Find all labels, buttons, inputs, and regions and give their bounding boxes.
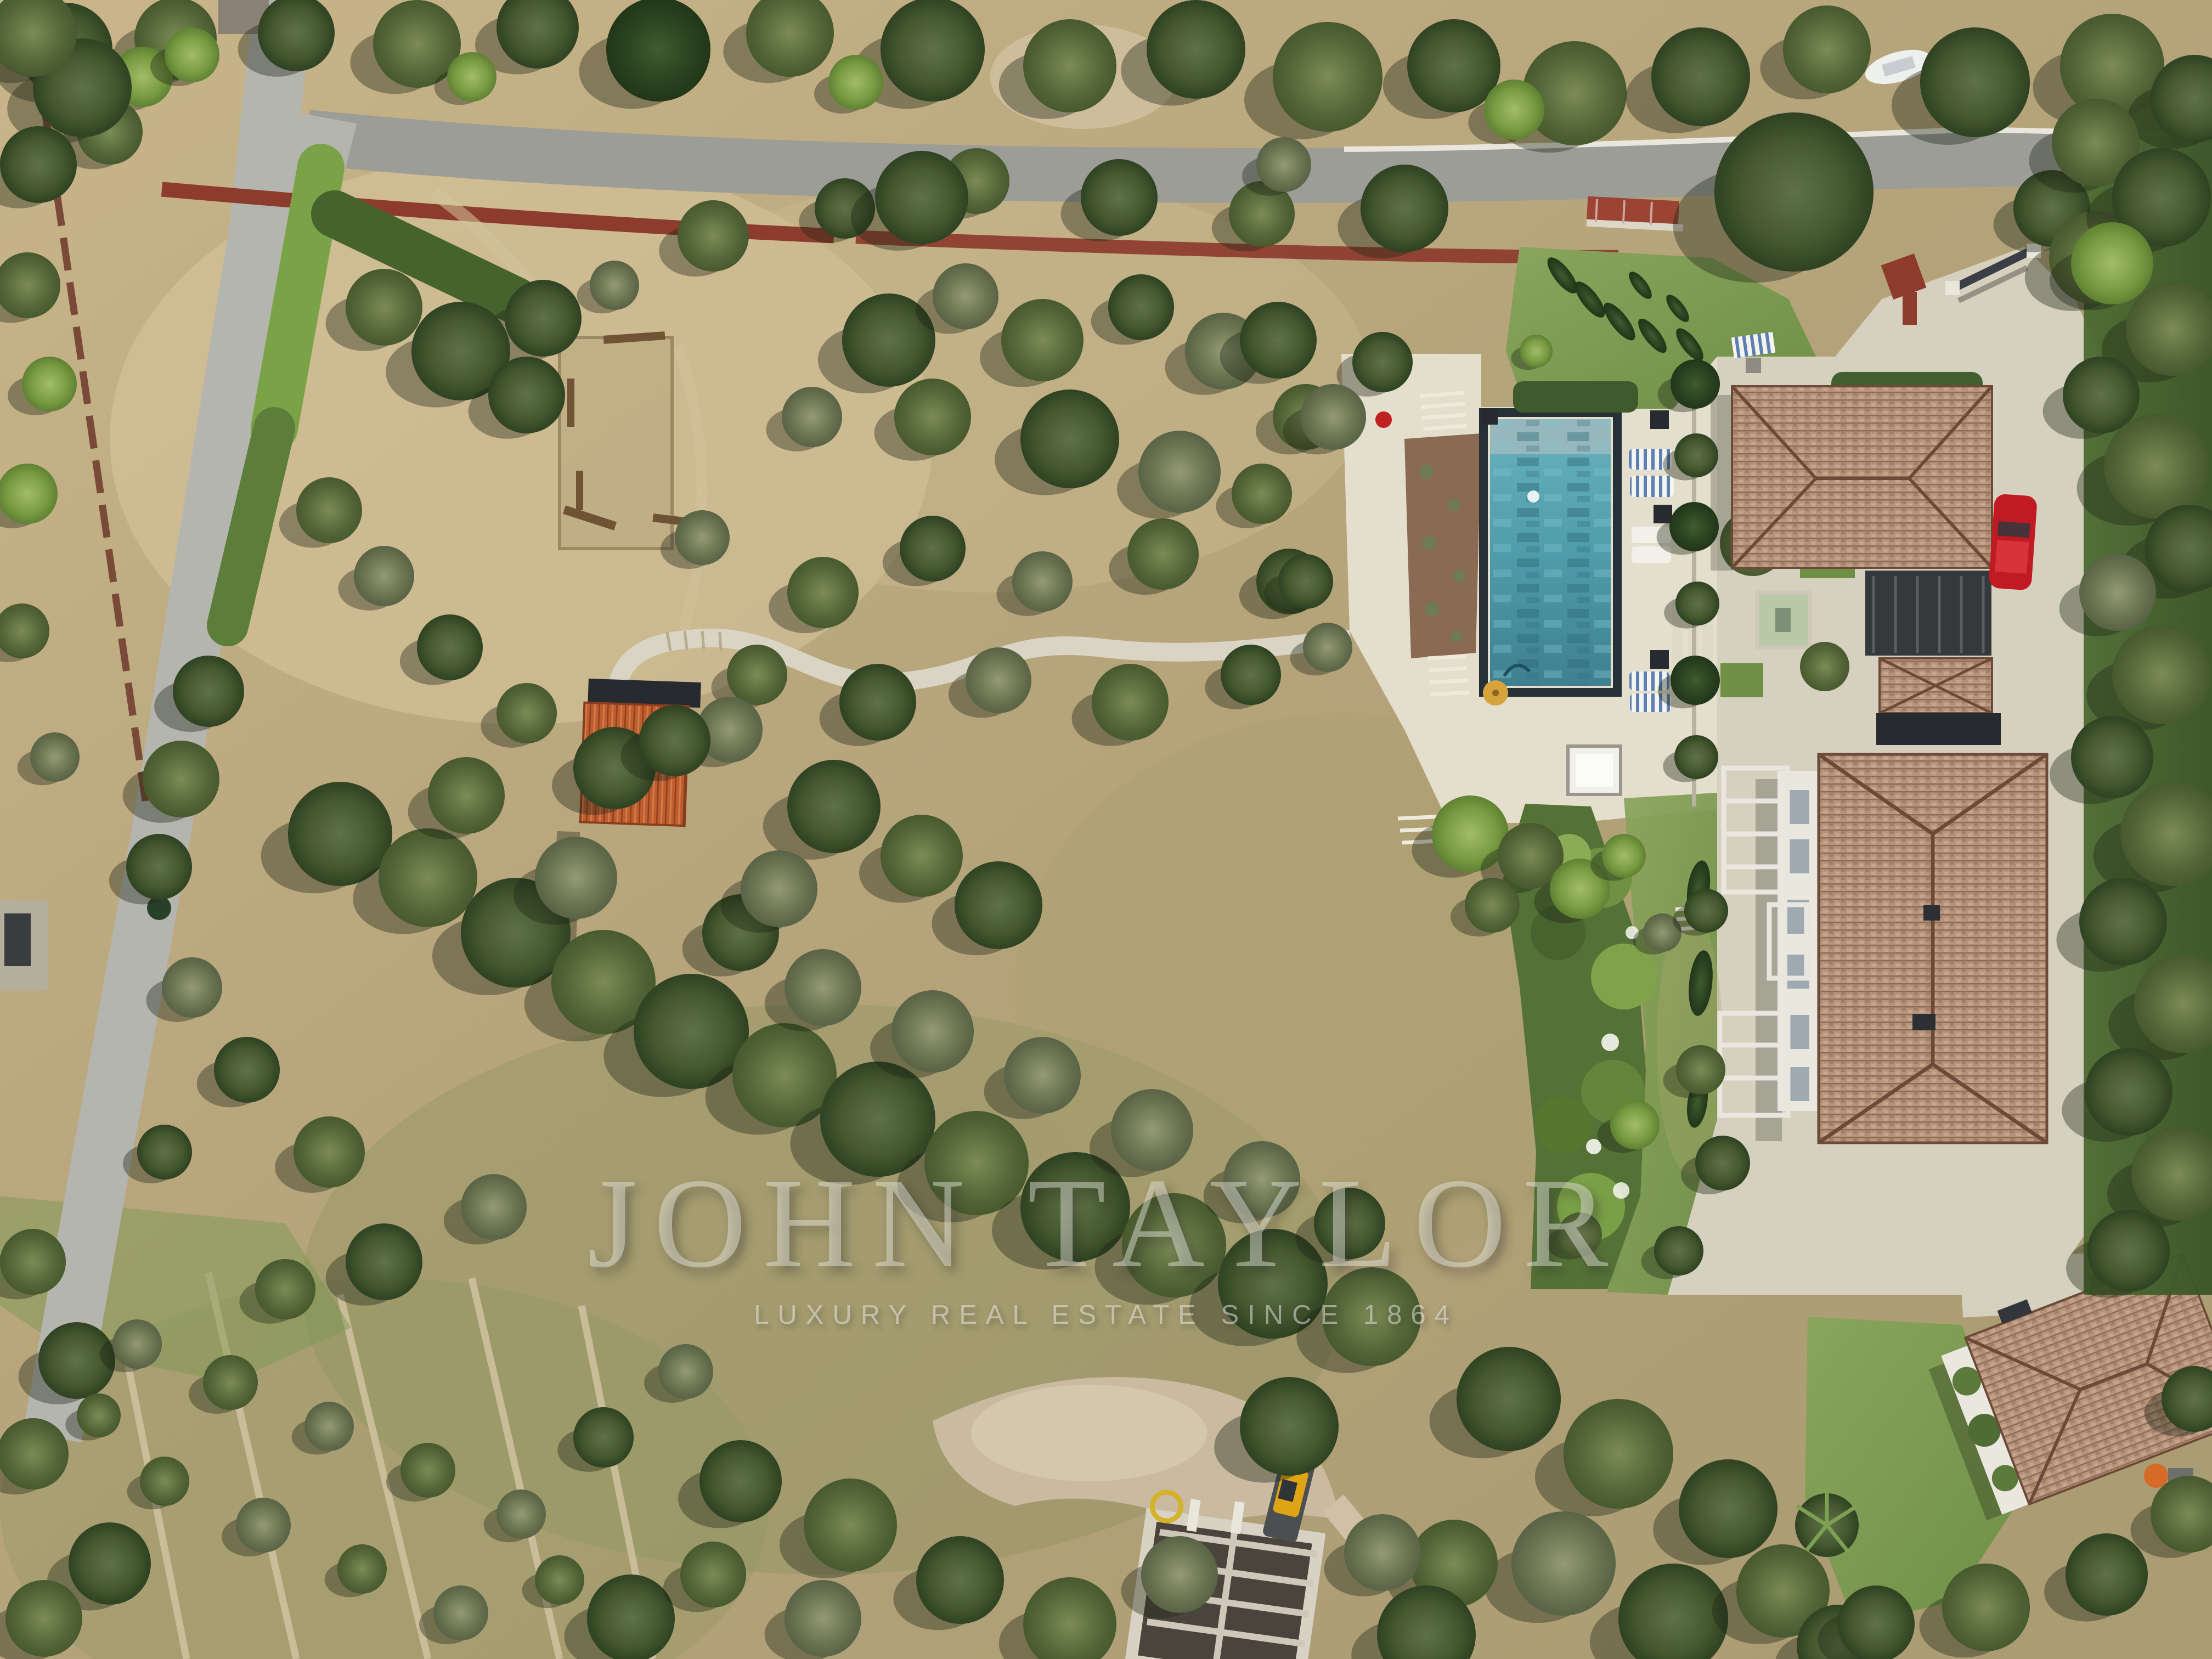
olive-tree [1092,664,1169,741]
olive-tree [428,757,505,834]
olive-tree [505,280,582,357]
olive-tree [1610,1100,1660,1149]
olive-tree [5,1580,82,1657]
olive-tree [488,357,565,433]
olive-tree [1674,433,1718,477]
olive-tree [587,1575,675,1659]
olive-tree [2104,414,2208,518]
olive-tree [875,151,968,244]
olive-tree [839,664,916,741]
olive-tree [1020,390,1119,488]
olive-tree [1273,22,1383,132]
canopy-daybed [1568,746,1621,794]
toy-tractor [1375,411,1392,428]
olive-tree [433,1585,488,1640]
olive-tree [1278,554,1333,609]
olive-tree [69,1522,151,1605]
olive-tree [916,1536,1004,1624]
olive-tree [787,557,859,628]
olive-tree [1465,878,1520,933]
olive-tree [447,52,496,101]
olive-tree [379,828,477,927]
olive-tree [1127,518,1199,590]
olive-tree [400,1443,455,1498]
clipped-hedge [1513,381,1638,413]
olive-tree [699,1440,782,1522]
olive-tree [785,949,861,1026]
olive-tree [0,1229,66,1295]
round-bush [1800,642,1849,691]
olive-tree [785,1580,861,1657]
olive-tree [1361,165,1448,252]
olive-tree [354,546,414,606]
olive-tree [2063,357,2140,433]
olive-tree [741,850,817,927]
olive-tree [1303,623,1352,672]
olive-tree [1138,431,1221,513]
olive-tree [966,647,1031,713]
olive-tree [573,1407,634,1468]
olive-tree [2066,1533,2148,1616]
utility-trailer [4,913,31,966]
olive-tree [1558,1212,1602,1256]
red-car [1988,494,2038,591]
olive-tree [461,1174,527,1240]
olive-tree [590,261,639,310]
olive-tree [1520,335,1553,368]
olive-tree [417,614,483,680]
aerial-photo-canvas [0,0,2212,1659]
chimney [1912,1014,1936,1030]
olive-tree [0,1418,69,1489]
olive-tree [2112,625,2211,724]
chimney [1923,905,1940,921]
olive-tree [891,990,974,1073]
olive-tree [346,269,422,346]
olive-tree [1679,1459,1778,1558]
olive-tree [678,200,749,272]
olive-tree [1942,1564,2030,1651]
olive-tree [236,1498,291,1553]
olive-tree [1240,302,1317,379]
olive-tree [1511,1511,1616,1616]
olive-tree [1300,384,1366,450]
olive-tree [337,1544,387,1594]
olive-tree [782,387,842,447]
olive-tree [1147,0,1245,99]
olive-tree [1684,889,1728,933]
lavender-bed [1404,433,1481,658]
olive-tree [0,126,77,203]
olive-tree [0,464,58,524]
olive-tree [1564,1399,1673,1509]
olive-tree [2071,716,2153,798]
olive-tree [22,357,77,411]
olive-tree [894,379,971,455]
olive-tree [1221,645,1281,705]
olive-tree [787,760,881,853]
olive-tree [1783,5,1871,93]
olive-tree [1676,1045,1725,1094]
gate-pillar [1945,281,1960,295]
villa-canopy [1876,713,2001,745]
olive-tree [1256,137,1311,192]
olive-tree [126,834,192,900]
olive-tree [535,1555,584,1605]
olive-tree [1838,1585,1915,1659]
olive-tree [112,1319,162,1369]
olive-tree [1001,299,1084,381]
olive-tree [2079,554,2156,631]
olive-tree [173,656,244,727]
olive-tree [955,861,1042,949]
olive-tree [828,55,883,110]
swimming-pool [1483,413,1617,692]
olive-tree [1675,582,1719,625]
olive-tree [255,1259,315,1319]
olive-tree [639,705,710,776]
olive-tree [2087,1210,2170,1292]
olive-tree [680,1542,746,1607]
olive-tree [933,263,998,329]
olive-tree [2079,878,2167,966]
olive-tree [346,1223,422,1300]
olive-tree [1920,27,2030,137]
olive-tree [30,732,80,782]
olive-tree [1651,27,1750,126]
olive-tree [1314,1188,1385,1259]
olive-tree [1012,551,1073,612]
olive-tree [675,510,730,565]
gate-red-wall [1903,292,1917,325]
olive-tree [1322,1267,1421,1366]
olive-tree [162,957,222,1018]
olive-tree [2085,1048,2172,1136]
olive-tree [1232,464,1292,524]
olive-tree [1714,112,1874,272]
olive-tree [296,477,362,543]
olive-tree [1240,1377,1339,1476]
olive-tree [77,1393,121,1437]
olive-tree [137,1125,192,1180]
cypress-tree [1671,359,1720,409]
cypress-tree [1671,656,1720,705]
olive-tree [1111,1089,1193,1171]
olive-tree [143,741,219,817]
olive-tree [900,516,966,582]
olive-tree [804,1479,897,1572]
olive-tree [1023,19,1116,112]
olive-tree [1344,1514,1421,1591]
garden-equipment [2144,1464,2168,1488]
pergola-dark [1865,571,1991,656]
olive-tree [1457,1347,1561,1451]
olive-tree [496,683,557,743]
olive-tree [658,1344,713,1399]
olive-tree [2071,222,2153,304]
pool-float [1527,490,1539,503]
olive-tree [1223,1141,1300,1218]
olive-tree [1081,159,1158,236]
olive-tree [294,1116,365,1188]
olive-tree [1654,1226,1703,1276]
olive-tree [1352,332,1413,392]
olive-tree [304,1402,354,1451]
olive-tree [140,1457,189,1506]
cypress-tree [606,0,710,101]
olive-tree [165,27,219,82]
fountain [1757,592,1810,647]
red-tiled-steps [1586,196,1684,232]
olive-tree [1141,1536,1218,1613]
olive-tree [496,1489,546,1539]
olive-tree [214,1037,280,1103]
olive-tree [881,0,985,101]
olive-tree [881,815,963,897]
square-planter [1720,663,1763,697]
olive-tree [1674,735,1718,779]
olive-tree [1484,80,1544,140]
olive-tree [1695,1136,1750,1190]
olive-tree [535,837,617,919]
aerial-photo: JOHN TAYLOR LUXURY REAL ESTATE SINCE 186… [0,0,2212,1659]
olive-tree [1108,274,1174,340]
cypress-tree [1669,502,1719,551]
olive-tree [727,645,787,705]
olive-tree [1602,834,1646,878]
olive-tree [1004,1037,1081,1114]
olive-tree [203,1355,258,1410]
